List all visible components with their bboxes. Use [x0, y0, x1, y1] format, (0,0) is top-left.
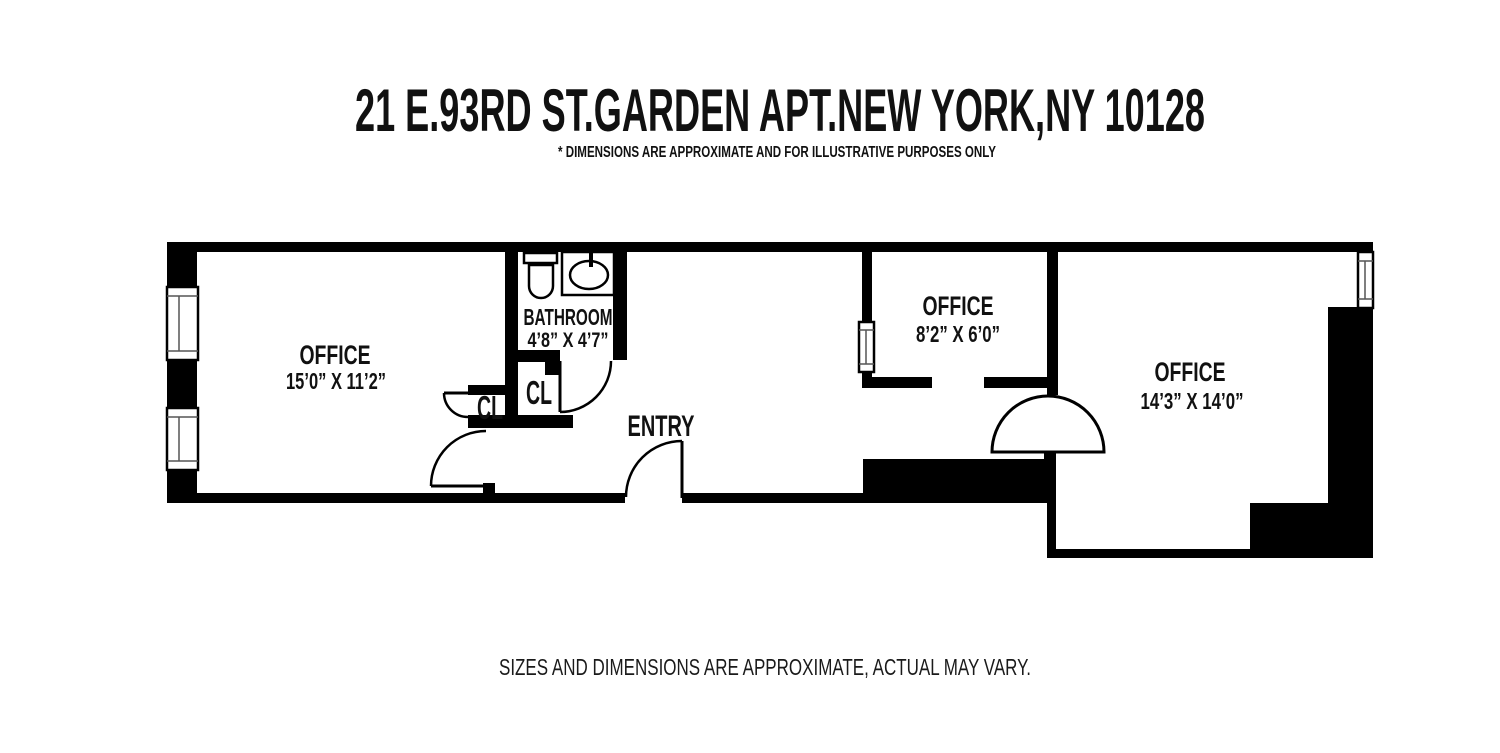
- wall-office-mid-bottom-left: [862, 377, 932, 388]
- bathroom-label: BATHROOM: [524, 304, 613, 330]
- bathroom-door-swing: [560, 361, 611, 412]
- office-left-door-swing: [431, 431, 486, 486]
- window-icon-office-right: [1358, 252, 1373, 308]
- wall-office-mid-left-upper: [862, 252, 872, 322]
- office-left-dims: 15’0” X 11’2”: [286, 368, 386, 394]
- office-right-label: OFFICE: [1155, 357, 1226, 387]
- office-left-label: OFFICE: [300, 340, 371, 370]
- floor-plan-drawing: 21 E.93RD ST.GARDEN APT.NEW YORK,NY 1012…: [0, 0, 1500, 753]
- wall-shared-offices: [1047, 242, 1058, 395]
- bathroom-dims: 4’8” X 4’7”: [528, 329, 609, 352]
- office-right-dims: 14’3” X 14’0”: [1141, 388, 1244, 414]
- wall-right-column: [1328, 307, 1373, 558]
- sink-icon: [562, 252, 614, 295]
- office-right-door-stub: [1044, 452, 1056, 467]
- closet-left-label: CL: [477, 389, 503, 426]
- wall-hallway-band: [863, 459, 1053, 503]
- entry-label: ENTRY: [628, 410, 695, 443]
- wall-closet-mid-bottom: [505, 415, 573, 428]
- window-icon-office-mid: [859, 322, 874, 372]
- wall-bottom-mid: [682, 493, 863, 503]
- wall-bottom-left: [167, 493, 625, 503]
- footer-note: SIZES AND DIMENSIONS ARE APPROXIMATE, AC…: [499, 654, 1031, 680]
- window-icon-left-upper: [167, 287, 198, 360]
- entry-door-swing: [626, 441, 682, 498]
- wall-top: [167, 242, 1373, 252]
- room-labels: OFFICE 15’0” X 11’2” BATHROOM 4’8” X 4’7…: [286, 291, 1244, 443]
- fixtures: [524, 252, 614, 298]
- closet-mid-label: CL: [526, 374, 552, 411]
- wall-closet-mid-stub: [545, 350, 560, 375]
- wall-office-right-bottom: [1048, 549, 1250, 558]
- wall-bathroom-left: [505, 242, 518, 428]
- toilet-icon: [524, 253, 557, 298]
- wall-bottom-right-step: [1250, 503, 1330, 558]
- floor-plan-page: 21 E.93RD ST.GARDEN APT.NEW YORK,NY 1012…: [0, 0, 1500, 753]
- office-right-door-swing: [992, 396, 1104, 467]
- closet-left-door-swing: [444, 393, 468, 417]
- page-title: 21 E.93RD ST.GARDEN APT.NEW YORK,NY 1012…: [355, 77, 1205, 144]
- office-mid-label: OFFICE: [923, 291, 994, 321]
- page-disclaimer: * DIMENSIONS ARE APPROXIMATE AND FOR ILL…: [558, 144, 996, 161]
- office-mid-dims: 8’2” X 6’0”: [916, 321, 1000, 347]
- wall-office-mid-bottom-right: [984, 377, 1058, 388]
- window-icon-left-lower: [167, 408, 198, 470]
- wall-left-upper: [167, 242, 197, 289]
- wall-office-right-left-lower: [1047, 467, 1056, 558]
- wall-left-mid: [167, 359, 197, 409]
